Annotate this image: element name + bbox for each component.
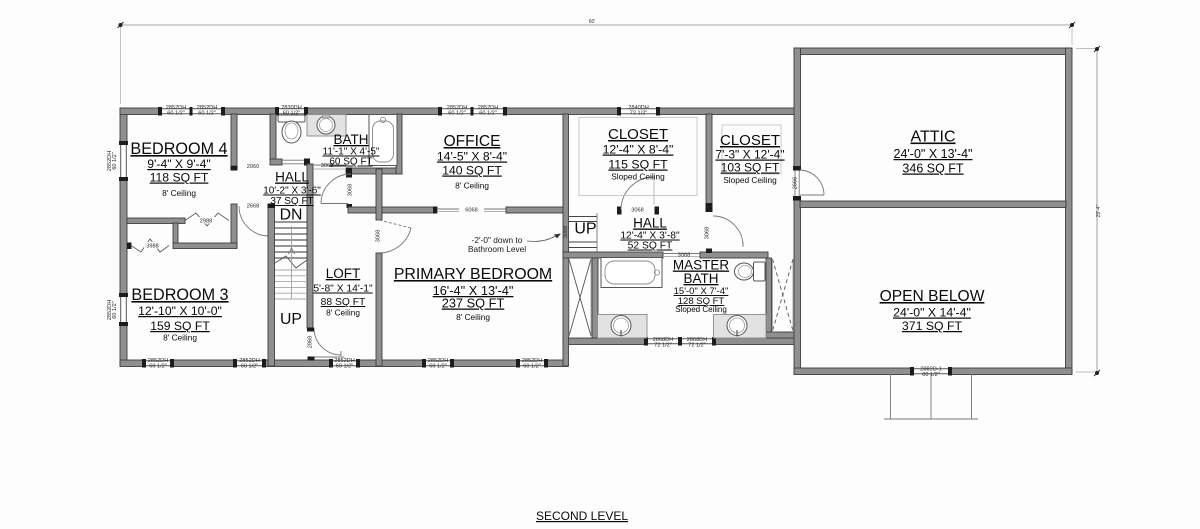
svg-text:3068: 3068 <box>348 184 354 196</box>
svg-text:SECOND LEVEL: SECOND LEVEL <box>536 509 628 523</box>
svg-text:ATTIC: ATTIC <box>910 129 955 146</box>
svg-text:60 1/2": 60 1/2" <box>149 363 167 369</box>
svg-text:3068: 3068 <box>631 208 643 214</box>
svg-text:Bathroom Level: Bathroom Level <box>468 244 526 254</box>
svg-text:60 1/2": 60 1/2" <box>429 363 447 369</box>
svg-text:60 1/2": 60 1/2" <box>479 110 497 116</box>
svg-text:BATH: BATH <box>333 132 368 147</box>
svg-text:CLOSET: CLOSET <box>608 126 668 143</box>
svg-text:118 SQ FT: 118 SQ FT <box>150 171 209 185</box>
svg-text:72 1/2": 72 1/2" <box>654 342 672 348</box>
svg-text:60 1/2": 60 1/2" <box>167 110 185 116</box>
svg-text:BEDROOM 4: BEDROOM 4 <box>130 140 227 158</box>
svg-text:UP: UP <box>280 311 302 328</box>
svg-text:12'-4" X 8'-4": 12'-4" X 8'-4" <box>603 143 674 157</box>
svg-text:UP: UP <box>574 221 596 238</box>
svg-text:60 1/2": 60 1/2" <box>523 363 541 369</box>
svg-text:2666: 2666 <box>793 177 799 189</box>
svg-text:60 1/2": 60 1/2" <box>448 110 466 116</box>
svg-text:3068: 3068 <box>563 226 569 238</box>
svg-text:2668: 2668 <box>247 204 259 210</box>
svg-text:CLOSET: CLOSET <box>720 132 780 149</box>
svg-text:BEDROOM 3: BEDROOM 3 <box>131 286 228 304</box>
svg-text:Sloped Ceiling: Sloped Ceiling <box>675 305 727 314</box>
svg-text:29'-4": 29'-4" <box>1096 204 1102 217</box>
svg-text:60 1/2": 60 1/2" <box>112 152 118 170</box>
svg-text:LOFT: LOFT <box>326 266 361 281</box>
svg-text:24'-0" X 13'-4": 24'-0" X 13'-4" <box>894 147 973 161</box>
svg-text:3068: 3068 <box>376 230 382 242</box>
svg-text:5'-8" X 14'-1": 5'-8" X 14'-1" <box>313 284 373 295</box>
svg-text:60': 60' <box>589 19 596 25</box>
svg-text:2868: 2868 <box>308 336 314 348</box>
svg-text:7'-3" X 12'-4": 7'-3" X 12'-4" <box>715 148 784 162</box>
svg-text:3068: 3068 <box>705 227 711 239</box>
svg-text:72 1/2": 72 1/2" <box>630 110 648 116</box>
svg-text:2060: 2060 <box>247 164 259 170</box>
svg-text:52 SQ FT: 52 SQ FT <box>628 241 673 252</box>
svg-text:8' Ceiling: 8' Ceiling <box>162 188 196 198</box>
svg-text:60 1/2": 60 1/2" <box>198 110 216 116</box>
svg-text:6068: 6068 <box>465 207 477 213</box>
svg-text:24'-0" X 14'-4": 24'-0" X 14'-4" <box>893 306 971 320</box>
svg-text:140 SQ FT: 140 SQ FT <box>442 164 502 178</box>
svg-text:60 1/2": 60 1/2" <box>336 363 354 369</box>
svg-text:346 SQ FT: 346 SQ FT <box>902 162 963 176</box>
svg-text:103 SQ FT: 103 SQ FT <box>721 161 780 175</box>
svg-text:60 1/2": 60 1/2" <box>241 363 259 369</box>
svg-text:72 1/2": 72 1/2" <box>688 342 706 348</box>
svg-text:8' Ceiling: 8' Ceiling <box>455 181 489 191</box>
svg-text:8' Ceiling: 8' Ceiling <box>326 308 360 318</box>
svg-text:PRIMARY BEDROOM: PRIMARY BEDROOM <box>394 266 552 283</box>
svg-text:60 SQ FT: 60 SQ FT <box>329 157 372 168</box>
svg-text:Sloped Ceiling: Sloped Ceiling <box>723 175 777 185</box>
svg-text:9'-4" X 9'-4": 9'-4" X 9'-4" <box>147 157 210 171</box>
svg-text:159 SQ FT: 159 SQ FT <box>150 319 210 333</box>
svg-text:37 SQ FT: 37 SQ FT <box>270 196 313 207</box>
svg-text:12'-10" X 10'-0": 12'-10" X 10'-0" <box>138 304 222 318</box>
svg-text:88 SQ FT: 88 SQ FT <box>321 297 366 308</box>
svg-text:8' Ceiling: 8' Ceiling <box>163 333 197 343</box>
svg-text:10'-2" X 3'-6": 10'-2" X 3'-6" <box>263 186 321 197</box>
svg-text:BATH: BATH <box>683 271 718 286</box>
svg-text:8' Ceiling: 8' Ceiling <box>456 312 490 322</box>
svg-text:OFFICE: OFFICE <box>444 133 501 150</box>
svg-text:237 SQ FT: 237 SQ FT <box>442 296 505 311</box>
svg-text:OPEN BELOW: OPEN BELOW <box>880 288 985 305</box>
svg-text:60 1/2": 60 1/2" <box>112 301 118 319</box>
svg-text:115 SQ FT: 115 SQ FT <box>608 158 668 172</box>
svg-text:DN: DN <box>280 207 303 224</box>
svg-text:HALL: HALL <box>275 170 309 185</box>
svg-text:HALL: HALL <box>633 216 667 231</box>
svg-text:2988: 2988 <box>200 219 212 225</box>
svg-text:371 SQ FT: 371 SQ FT <box>902 319 963 333</box>
svg-text:Sloped Ceiling: Sloped Ceiling <box>611 172 665 182</box>
svg-text:3988: 3988 <box>146 244 158 250</box>
svg-text:14'-5" X 8'-4": 14'-5" X 8'-4" <box>437 150 507 164</box>
